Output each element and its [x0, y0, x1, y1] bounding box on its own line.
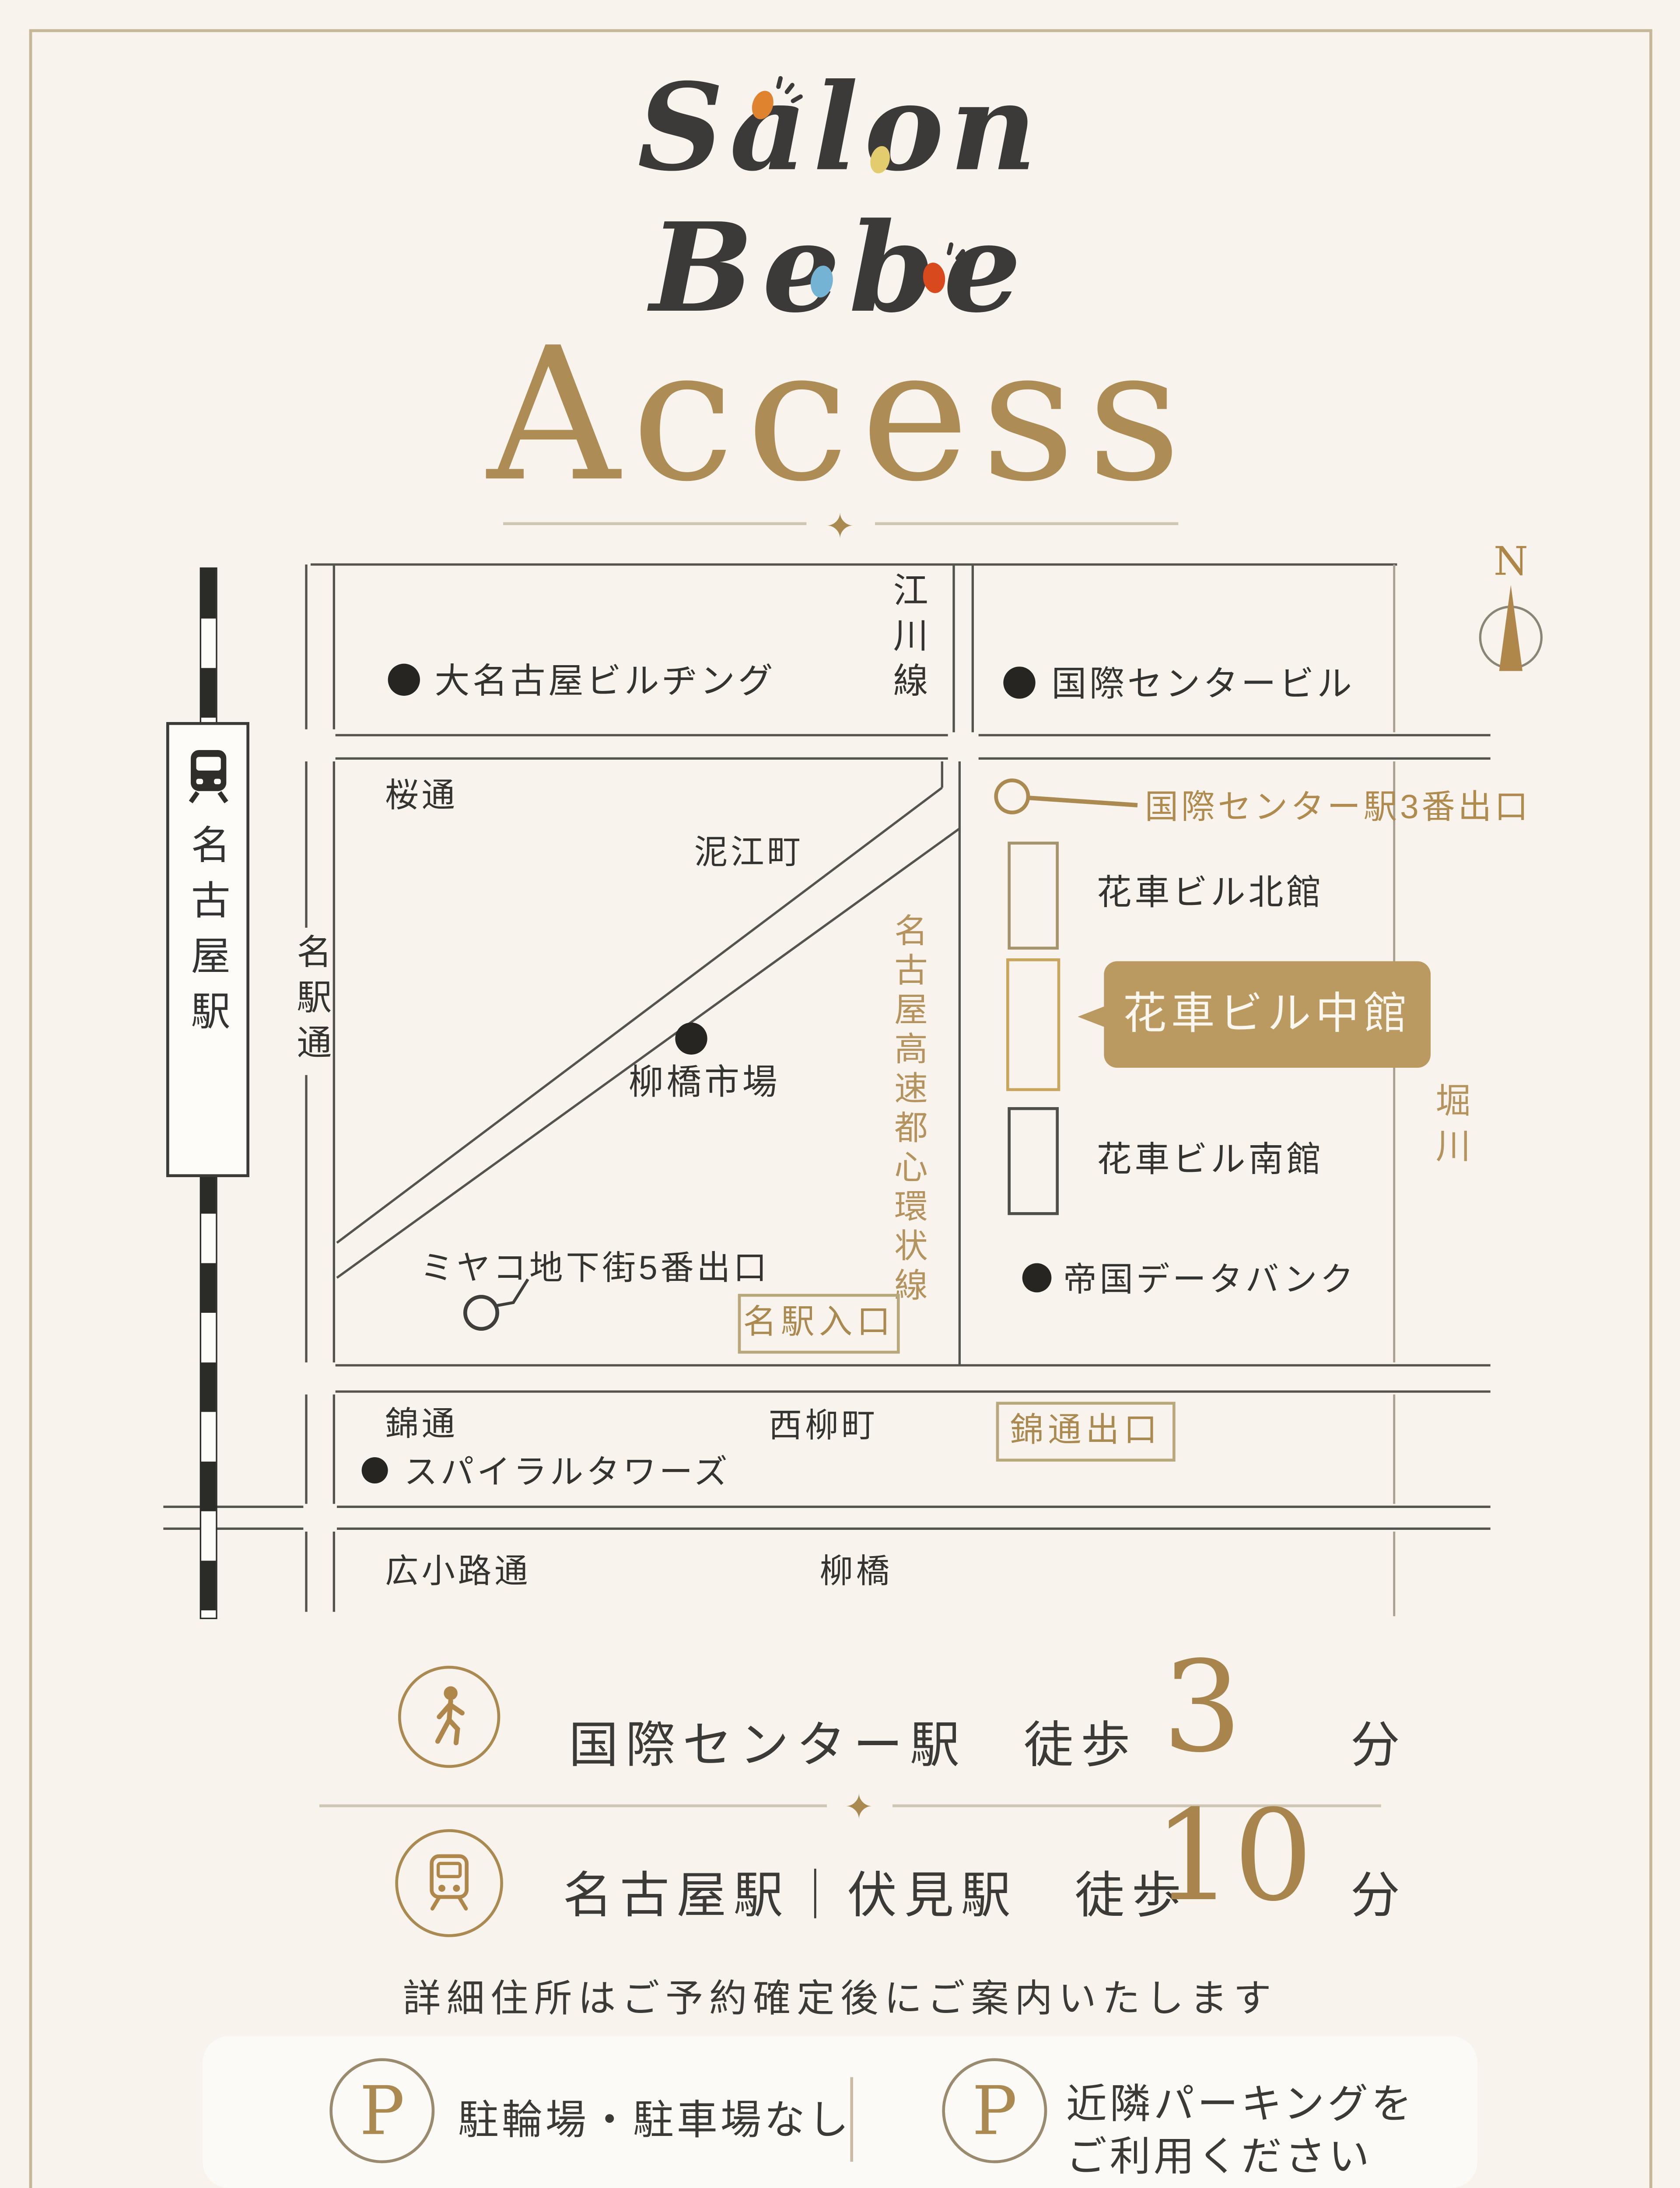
- landmark-spiral-towers: スパイラルタワーズ: [404, 1452, 730, 1494]
- building-north-outline: [1008, 842, 1059, 950]
- area-label-yanagibashi: 柳橋: [819, 1550, 892, 1592]
- parking-item1-line1: 駐輪場・駐車場なし: [458, 2089, 852, 2147]
- landmark-teikoku-databank: 帝国データバンク: [1063, 1259, 1357, 1301]
- parking-icon-ring: P: [942, 2058, 1047, 2163]
- nagoya-station-label: 名古屋駅: [179, 824, 236, 1046]
- building-middle-outline: [1006, 958, 1060, 1091]
- access-divider-left: [319, 1804, 827, 1807]
- poster: Salon Bebe Access ✦: [0, 0, 1680, 2188]
- train-icon: [186, 748, 230, 804]
- walk-row-minutes: 3: [1162, 1645, 1242, 1771]
- nagoya-station-box: 名古屋駅: [166, 722, 249, 1177]
- parking-item2-line1: 近隣パーキングを: [1066, 2073, 1415, 2131]
- exit-label-miyako: ミヤコ地下街5番出口: [420, 1247, 770, 1289]
- building-south-outline: [1008, 1107, 1059, 1215]
- kokusai-exit-marker-icon: [996, 780, 1028, 812]
- parking-p-icon: P: [972, 2077, 1017, 2144]
- landmark-dot: [675, 1023, 707, 1055]
- river-label-horikawa: 堀川: [1426, 1082, 1470, 1173]
- walk-icon-ring: [398, 1666, 500, 1768]
- road-label-nishiki: 錦通: [385, 1403, 458, 1445]
- road-label-egawa: 江川線: [884, 572, 927, 708]
- area-label-nishiyanagicho: 西柳町: [769, 1405, 878, 1447]
- train-row-unit: 分: [1351, 1855, 1400, 1927]
- train-icon: [426, 1854, 472, 1912]
- compass-north-label: N: [1482, 543, 1540, 582]
- walk-row-unit: 分: [1351, 1705, 1400, 1777]
- parking-p-icon: P: [360, 2077, 405, 2144]
- parking-divider: [850, 2077, 853, 2162]
- building-south-label: 花車ビル南館: [1097, 1139, 1324, 1183]
- compass-needle-icon: [1499, 585, 1522, 671]
- walk-row-label: 国際センター駅 徒歩: [569, 1705, 1137, 1777]
- road-label-meieki-dori: 名駅通: [286, 928, 332, 1075]
- parking-icon-ring: P: [329, 2058, 434, 2163]
- landmark-dot: [1003, 666, 1035, 698]
- train-row-label: 名古屋駅｜伏見駅 徒歩: [563, 1855, 1189, 1927]
- landmark-yanagibashi-market: 柳橋市場: [629, 1062, 780, 1106]
- train-icon-ring: [395, 1829, 503, 1937]
- address-note: 詳細住所はご予約確定後にご案内いたします: [0, 1969, 1680, 2023]
- exit-label-kokusai-center: 国際センター駅3番出口: [1145, 786, 1531, 828]
- miyako-exit-marker-icon: [465, 1297, 497, 1329]
- parking-item2-line2: ご利用ください: [1066, 2125, 1372, 2184]
- sparkle-icon: ✦: [827, 1787, 891, 1827]
- exit-box-meieki-entrance: 名駅入口: [738, 1294, 900, 1354]
- landmark-kokusai-center: 国際センタービル: [1051, 664, 1354, 708]
- building-north-label: 花車ビル北館: [1097, 872, 1324, 916]
- road-label-hirokoji: 広小路通: [385, 1550, 531, 1592]
- road-label-expressway: 名古屋高速都心環状線: [887, 913, 929, 1307]
- landmark-dot: [362, 1457, 388, 1483]
- landmark-dot: [388, 664, 420, 696]
- road-label-sakura: 桜通: [385, 775, 458, 817]
- landmark-dot: [1022, 1263, 1052, 1293]
- building-middle-callout: 花車ビル中館: [1104, 961, 1431, 1068]
- train-row-minutes: 10: [1154, 1794, 1313, 1920]
- area-label-hijiecho: 泥江町: [694, 831, 804, 873]
- access-flyer: Salon Bebe Access ✦: [0, 0, 1680, 2188]
- exit-box-nishiki: 錦通出口: [996, 1402, 1176, 1462]
- walking-person-icon: [426, 1685, 472, 1749]
- landmark-dai-nagoya: 大名古屋ビルヂング: [434, 661, 776, 705]
